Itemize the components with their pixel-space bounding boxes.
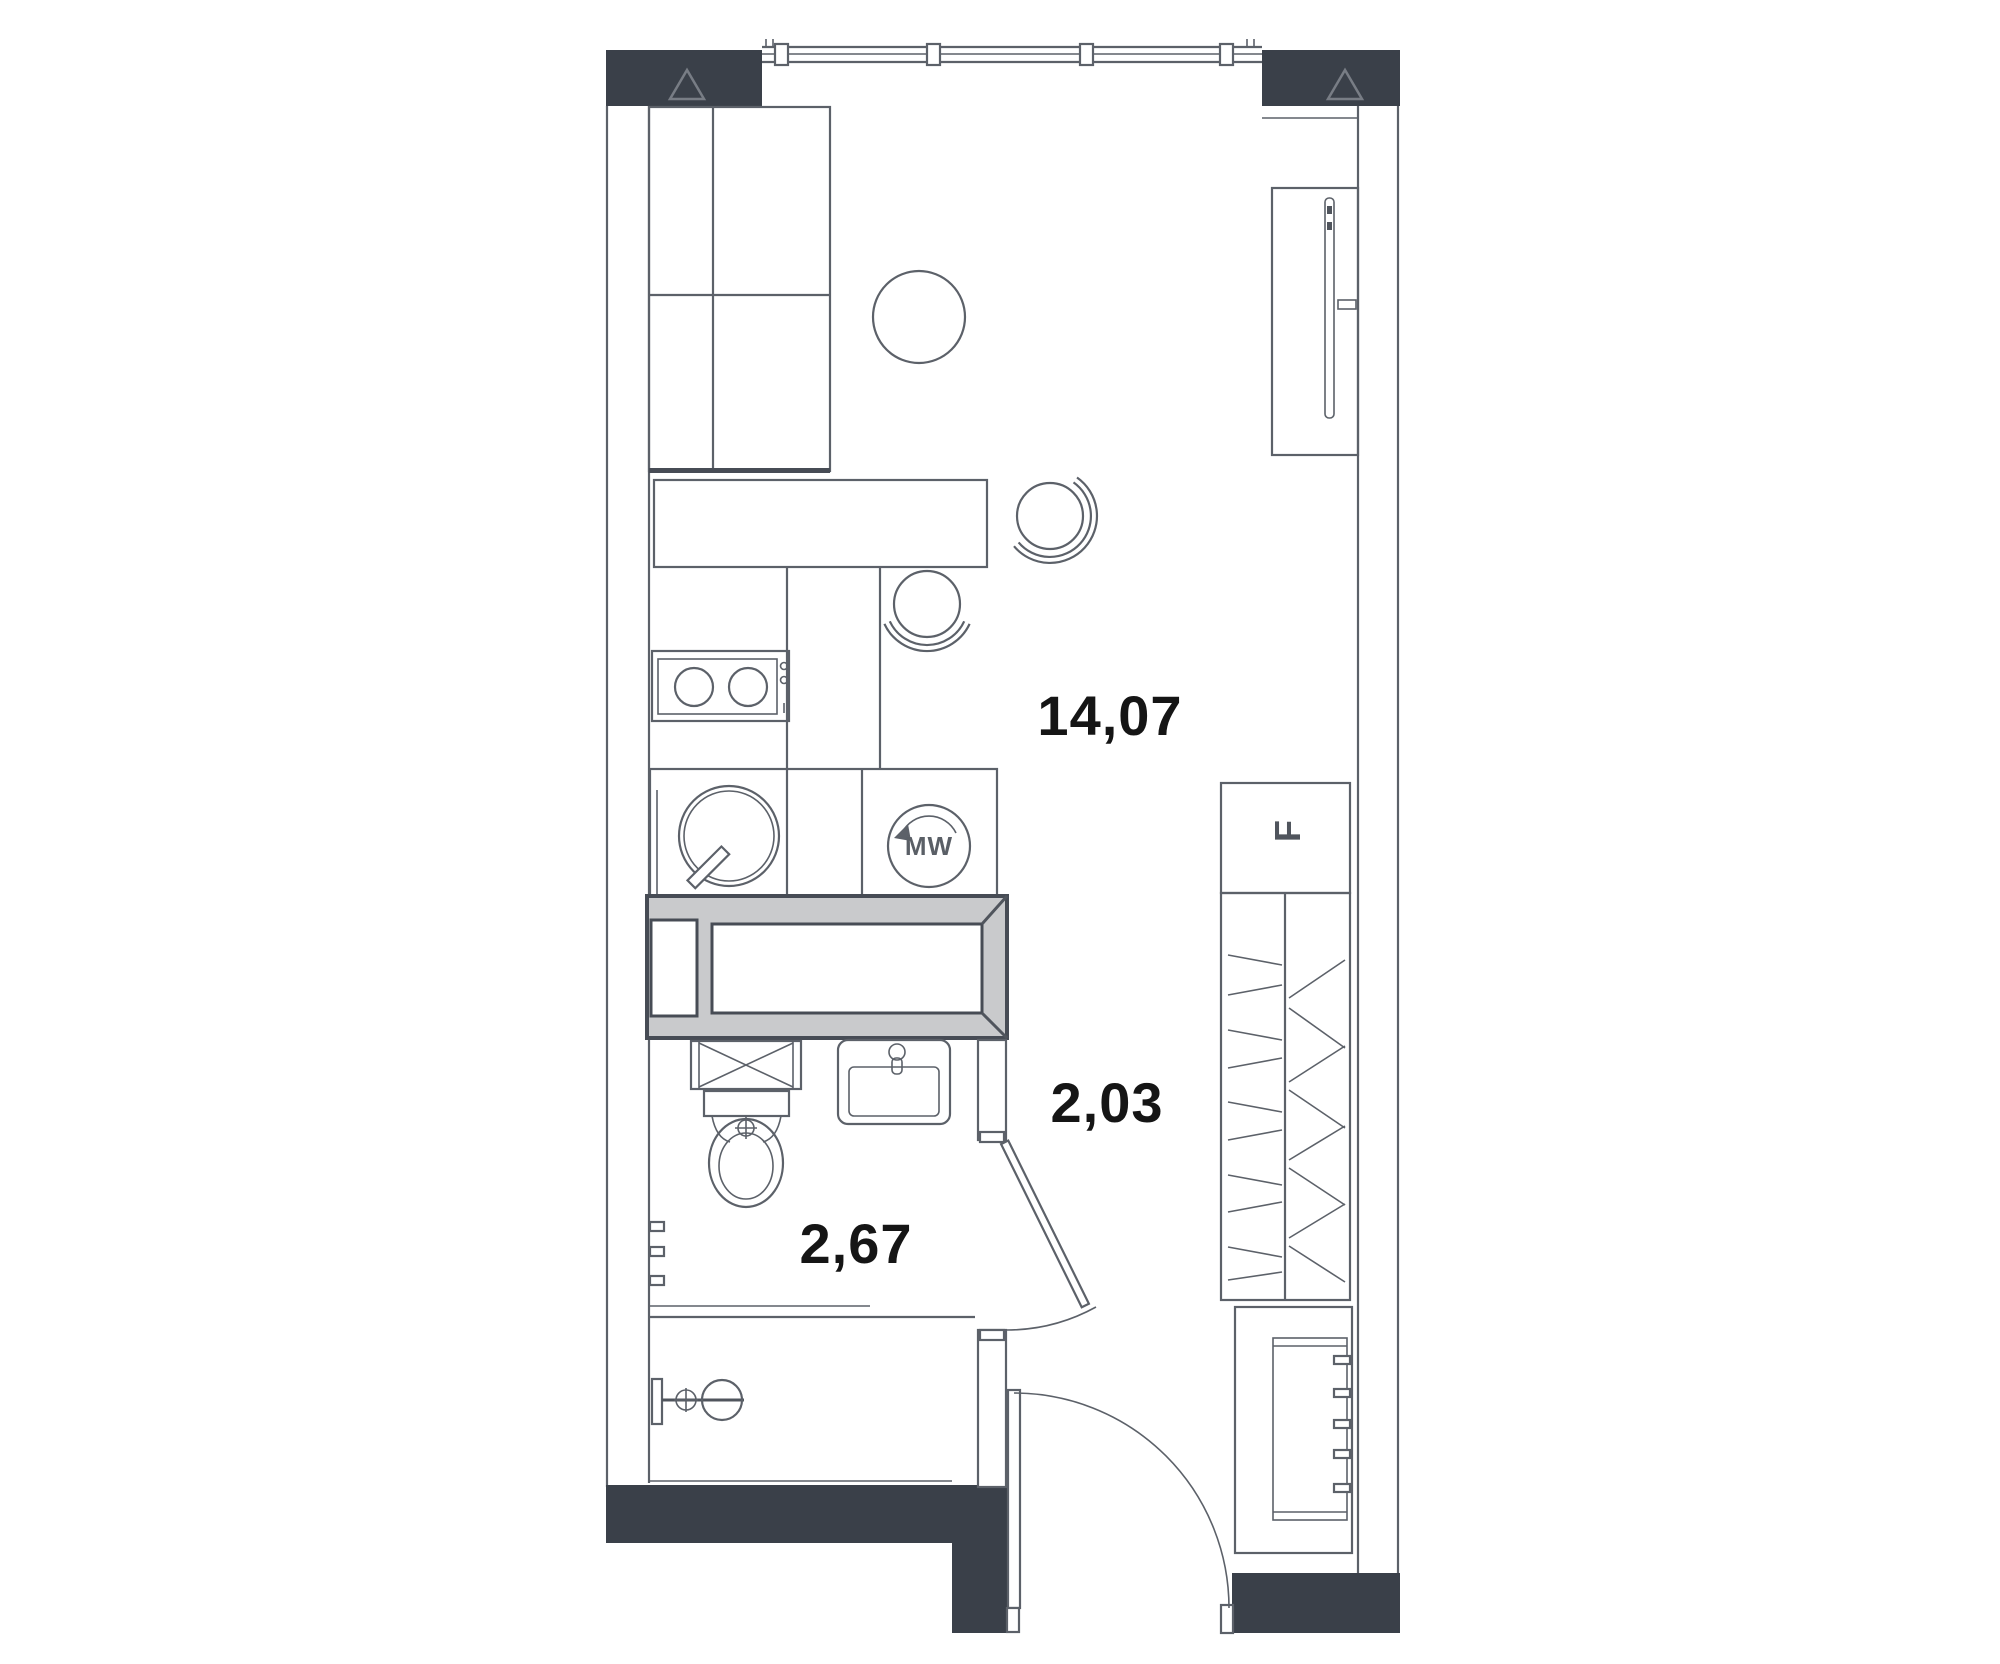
chair xyxy=(884,571,969,651)
chair xyxy=(1014,478,1097,563)
wardrobe xyxy=(1221,893,1350,1300)
burner xyxy=(729,668,767,706)
shower-partition xyxy=(650,1306,975,1317)
vent-shaft-left xyxy=(606,50,762,106)
entrance-door xyxy=(1007,1390,1233,1633)
hanging-clothes-hatch xyxy=(1228,955,1345,1282)
kitchen-sink xyxy=(657,786,779,895)
fridge: F xyxy=(1221,783,1350,893)
window-mullion xyxy=(927,44,940,65)
tv xyxy=(1325,198,1334,418)
shower-head xyxy=(652,1379,744,1424)
microwave: MW xyxy=(888,805,970,887)
washing-machine xyxy=(691,1041,801,1089)
bathroom-door xyxy=(1001,1141,1096,1330)
shoe-cabinet xyxy=(1235,1307,1352,1553)
wall-bottom-right xyxy=(1232,1573,1400,1633)
dining-table xyxy=(873,271,965,363)
area-label-living-room: 14,07 xyxy=(1037,684,1182,747)
tv-bracket xyxy=(1338,300,1356,309)
floor-plan-drawing: MW xyxy=(0,0,2000,1664)
tv-unit xyxy=(1272,188,1358,455)
fridge-label: F xyxy=(1267,820,1308,842)
burner xyxy=(675,668,713,706)
toilet xyxy=(704,1091,789,1207)
area-label-hallway: 2,03 xyxy=(1051,1071,1164,1134)
floor-plan-page: MW xyxy=(0,0,2000,1664)
window-mullion xyxy=(1080,44,1093,65)
storage-niche xyxy=(647,896,1007,1038)
towel-radiator xyxy=(650,1222,664,1285)
bathroom-sink xyxy=(838,1040,950,1124)
area-label-bathroom: 2,67 xyxy=(800,1212,913,1275)
stove xyxy=(652,651,789,721)
microwave-label: MW xyxy=(905,831,953,861)
wall-bottom-left xyxy=(606,1481,1008,1633)
bed xyxy=(649,107,830,473)
window-mullion xyxy=(775,44,788,65)
vent-shaft-right xyxy=(1262,50,1400,106)
desk xyxy=(654,480,987,567)
window xyxy=(762,39,1262,65)
wall-left xyxy=(607,106,649,1487)
window-mullion xyxy=(1220,44,1233,65)
bathroom-wall xyxy=(978,1040,1006,1487)
